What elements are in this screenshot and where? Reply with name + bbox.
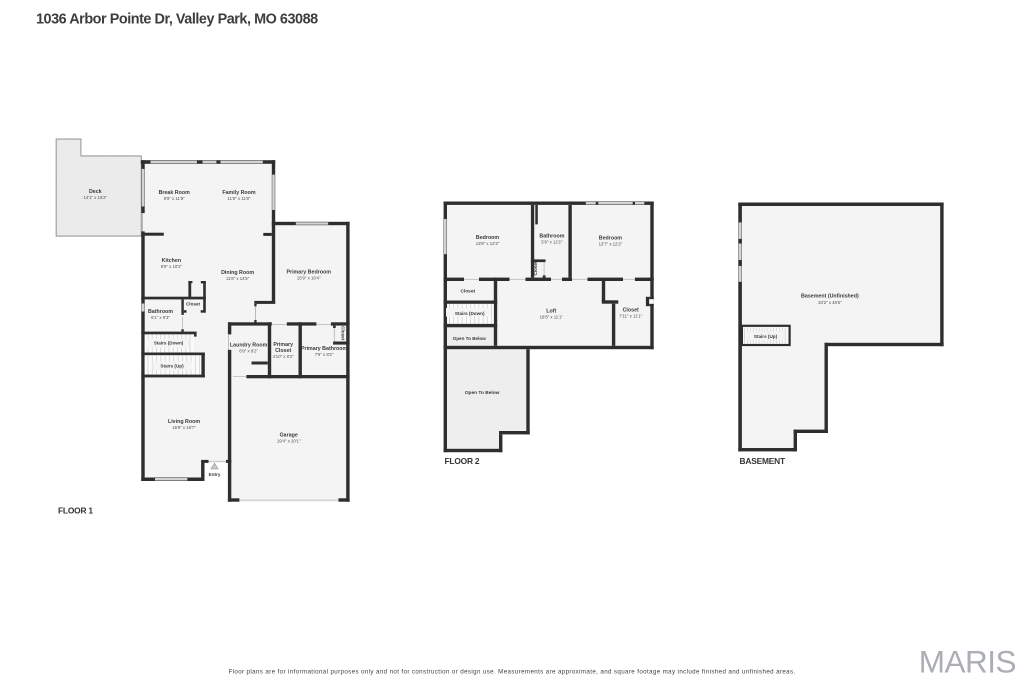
svg-text:Closet: Closet — [186, 302, 201, 307]
svg-text:Closet: Closet — [460, 289, 475, 295]
svg-text:5'9" x 12'2": 5'9" x 12'2" — [541, 239, 563, 244]
svg-text:11'8" x 14'5": 11'8" x 14'5" — [226, 276, 250, 281]
svg-text:Stairs (Down): Stairs (Down) — [154, 341, 184, 346]
svg-text:Stairs (Up): Stairs (Up) — [754, 334, 778, 339]
svg-text:11'8" x 11'8": 11'8" x 11'8" — [228, 196, 251, 201]
svg-text:9'9" x 11'8": 9'9" x 11'8" — [164, 196, 185, 201]
svg-text:14'1" x 16'2": 14'1" x 16'2" — [84, 195, 108, 200]
svg-text:Stairs (Down): Stairs (Down) — [455, 311, 485, 316]
svg-text:MARIS: MARIS — [919, 644, 1016, 680]
svg-text:Closet: Closet — [341, 326, 346, 341]
svg-text:Open To Below: Open To Below — [465, 390, 500, 396]
svg-text:19'4" x 20'1": 19'4" x 20'1" — [277, 438, 301, 443]
svg-text:7'9" x 8'2": 7'9" x 8'2" — [315, 352, 334, 357]
svg-text:Open To Below: Open To Below — [453, 336, 487, 341]
svg-text:15'9" x 16'7": 15'9" x 16'7" — [172, 425, 196, 430]
svg-text:1036 Arbor Pointe Dr, Valley P: 1036 Arbor Pointe Dr, Valley Park, MO 63… — [36, 12, 318, 28]
svg-text:6'9" x 8'2": 6'9" x 8'2" — [239, 349, 258, 354]
svg-text:6'1" x 9'3": 6'1" x 9'3" — [151, 315, 170, 320]
svg-text:33'2" x 48'5": 33'2" x 48'5" — [818, 300, 842, 305]
svg-text:13'8" x 12'2": 13'8" x 12'2" — [476, 241, 500, 246]
svg-text:BASEMENT: BASEMENT — [740, 456, 786, 466]
svg-text:15'9" x 16'4": 15'9" x 16'4" — [297, 275, 321, 280]
svg-text:Floor plans are for informatio: Floor plans are for informational purpos… — [228, 669, 795, 676]
svg-text:13'7" x 12'2": 13'7" x 12'2" — [599, 241, 623, 246]
svg-text:9'9" x 10'2": 9'9" x 10'2" — [161, 264, 183, 269]
svg-text:FLOOR 1: FLOOR 1 — [58, 506, 93, 516]
svg-text:Closet: Closet — [533, 261, 538, 276]
svg-text:18'8" x 11'1": 18'8" x 11'1" — [540, 314, 564, 319]
svg-text:4'10" x 8'2": 4'10" x 8'2" — [273, 354, 295, 359]
svg-text:Stairs (Up): Stairs (Up) — [160, 363, 184, 368]
svg-text:FLOOR 2: FLOOR 2 — [445, 456, 480, 466]
svg-text:Basement (Unfinished): Basement (Unfinished) — [801, 294, 859, 300]
svg-text:7'11" x 11'1": 7'11" x 11'1" — [619, 313, 642, 318]
svg-text:Entry: Entry — [209, 472, 221, 477]
